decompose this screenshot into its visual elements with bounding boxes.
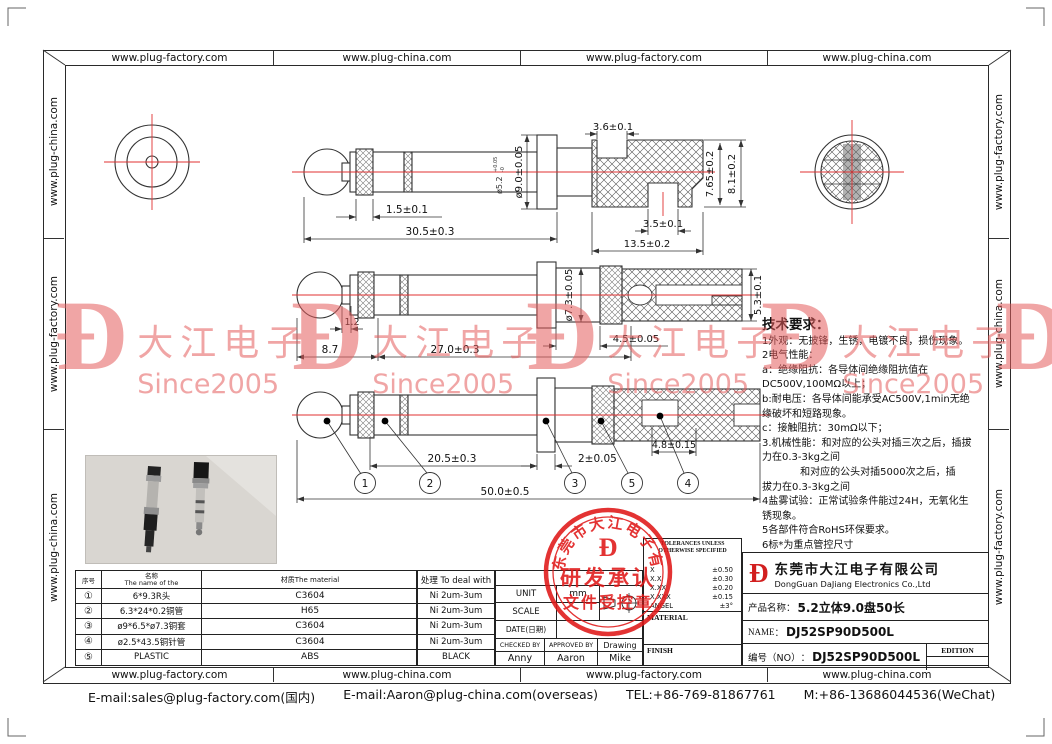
dim-notch-bottom: 3.5±0.1 — [643, 219, 683, 230]
company-block: Ð 东莞市大江电子有限公司 DongGuan DaJiang Electroni… — [742, 552, 989, 666]
parts-table: 序号 名称 The name of the 材质The material ① 6… — [75, 570, 417, 666]
balloon-4: 4 — [685, 478, 692, 490]
dim-body-length: 27.0±0.3 — [431, 344, 480, 356]
balloon-3: 3 — [572, 478, 579, 490]
deal-column: 处理 To deal with Ni 2um-3um Ni 2um-3um Ni… — [417, 570, 495, 666]
row-material: C3604 — [202, 619, 418, 634]
row-name: PLASTIC — [102, 650, 202, 665]
balloon-5: 5 — [629, 478, 636, 490]
tech-requirements: 技术要求： 1外观：无披锋，生锈，电镀不良，损伤现象。 2电气性能： a：绝缘阻… — [762, 318, 992, 554]
dim-end-height: 5.3±0.1 — [753, 275, 764, 315]
row-deal: Ni 2um-3um — [418, 604, 494, 619]
col-header-no: 序号 — [76, 571, 102, 589]
product-name: 5.2立体9.0盘50长 — [798, 599, 905, 616]
dim-shaft-length: 20.5±0.3 — [428, 453, 477, 465]
row-material: ABS — [202, 650, 418, 665]
part-name: DJ52SP90D500L — [786, 625, 894, 639]
front-view — [104, 114, 200, 210]
edition-box: EDITION — [926, 644, 988, 670]
footer-email-domestic: E-mail:sales@plug-factory.com(国内) — [88, 687, 315, 706]
stamp-line1: 研发承认 — [560, 566, 656, 590]
row-material: H65 — [202, 604, 418, 619]
footer-email-overseas: E-mail:Aaron@plug-china.com(overseas) — [343, 687, 598, 706]
finish-label: FINISH — [644, 644, 741, 656]
row-deal: Ni 2um-3um — [418, 635, 494, 650]
row-no: ① — [76, 589, 102, 604]
company-header: Ð 东莞市大江电子有限公司 DongGuan DaJiang Electroni… — [743, 553, 988, 593]
footer-mobile: M:+86-13686044536(WeChat) — [804, 687, 996, 706]
dim-notch-top: 3.6±0.1 — [593, 122, 633, 133]
dim-outer-height: 8.1±0.2 — [727, 154, 738, 194]
tech-title: 技术要求： — [762, 318, 992, 333]
edition-label: EDITION — [927, 644, 988, 657]
svg-text:ø5.2: ø5.2 — [495, 176, 504, 194]
dim-knurl-length: 1.5±0.1 — [386, 204, 428, 216]
row-deal: Ni 2um-3um — [418, 619, 494, 634]
finish-value — [644, 656, 741, 671]
dim-ball: 8.7 — [322, 344, 339, 356]
checked-by-value: Anny — [495, 651, 545, 666]
row-name: ø2.5*43.5铜针管 — [102, 635, 202, 650]
row-deal: BLACK — [418, 650, 494, 665]
part-number: DJ52SP90D500L — [812, 650, 920, 664]
drawn-by-value: Mike — [597, 651, 643, 666]
product-row: 产品名称： 5.2立体9.0盘50长 — [743, 593, 988, 620]
svg-text:-0: -0 — [500, 167, 506, 172]
row-no: ② — [76, 604, 102, 619]
dim-body-dia: ø7.3±0.05 — [564, 269, 575, 322]
row-material: C3604 — [202, 635, 418, 650]
side-view-middle — [292, 262, 760, 328]
approved-by-value: Aaron — [544, 651, 598, 666]
approval-stamp: 东莞市大江电子有限公司 Ð 研发承认 文件受控章 — [535, 500, 685, 645]
dim-section-length: 4.5±0.05 — [613, 334, 660, 345]
dim-neck: 1.2 — [344, 317, 359, 328]
col-header-deal: 处理 To deal with — [418, 571, 494, 589]
drawing-sheet: www.plug-factory.com www.plug-china.com … — [0, 0, 1052, 744]
company-logo-icon: Ð — [749, 560, 769, 587]
balloon-2: 2 — [427, 478, 434, 490]
dim-flange-dia: ø9.0±0.05 — [514, 146, 525, 199]
company-name-cn: 东莞市大江电子有限公司 — [775, 558, 940, 578]
row-no: ③ — [76, 619, 102, 634]
footer-contacts: E-mail:sales@plug-factory.com(国内) E-mail… — [60, 687, 1020, 706]
col-header-material: 材质The material — [202, 571, 418, 589]
dim-handle-length: 13.5±0.2 — [624, 239, 671, 250]
row-no: ⑤ — [76, 650, 102, 665]
row-name: ø9*6.5*ø7.3铜套 — [102, 619, 202, 634]
side-view-top — [292, 135, 715, 216]
row-no: ④ — [76, 635, 102, 650]
stamp-line2: 文件受控章 — [563, 593, 653, 612]
stamp-logo: Ð — [599, 533, 618, 562]
dim-plug-length: 30.5±0.3 — [406, 226, 455, 238]
dim-total-length: 50.0±0.5 — [481, 486, 530, 498]
row-name: 6.3*24*0.2铜管 — [102, 604, 202, 619]
end-view — [800, 120, 904, 224]
balloon-1: 1 — [362, 478, 369, 490]
company-name-en: DongGuan DaJiang Electronics Co.,Ltd — [775, 579, 940, 589]
dim-inner-height: 7.65±0.2 — [705, 151, 716, 198]
row-name: 6*9.3R头 — [102, 589, 202, 604]
dim-slot: 4.8±0.15 — [652, 440, 696, 451]
number-row: 编号（NO） ： DJ52SP90D500L EDITION — [743, 643, 988, 670]
dim-disc-thickness: 2±0.05 — [578, 453, 617, 465]
col-header-name: 名称 The name of the — [102, 571, 202, 589]
footer-telephone: TEL:+86-769-81867761 — [626, 687, 776, 706]
row-material: C3604 — [202, 589, 418, 604]
product-photo — [85, 455, 277, 564]
side-view-bottom — [292, 378, 770, 452]
name-row: NAME ： DJ52SP90D500L — [743, 620, 988, 643]
svg-text:+0.05: +0.05 — [493, 157, 499, 172]
row-deal: Ni 2um-3um — [418, 589, 494, 604]
